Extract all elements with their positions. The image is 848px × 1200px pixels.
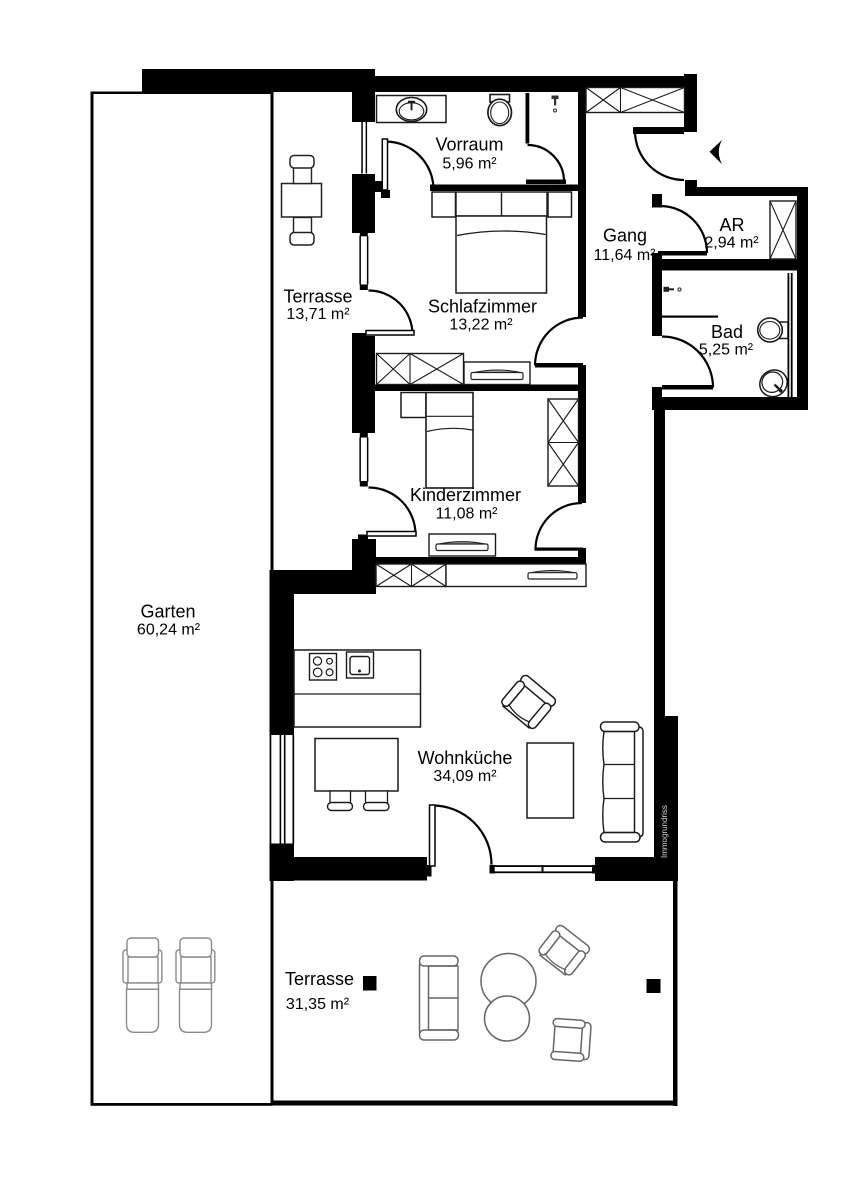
svg-text:31,35 m²: 31,35 m²	[286, 996, 350, 1013]
svg-text:Kinderzimmer: Kinderzimmer	[410, 485, 521, 505]
svg-text:Garten: Garten	[140, 602, 195, 622]
svg-text:Terrasse: Terrasse	[283, 287, 352, 307]
svg-text:11,08 m²: 11,08 m²	[436, 506, 499, 523]
svg-text:AR: AR	[719, 215, 744, 235]
svg-text:Wohnküche: Wohnküche	[418, 748, 513, 768]
svg-text:34,09 m²: 34,09 m²	[433, 768, 497, 785]
svg-text:Gang: Gang	[603, 226, 647, 246]
svg-text:11,64 m²: 11,64 m²	[594, 247, 657, 264]
svg-text:13,71 m²: 13,71 m²	[286, 306, 350, 323]
svg-text:Vorraum: Vorraum	[435, 135, 503, 155]
svg-text:13,22 m²: 13,22 m²	[449, 317, 513, 334]
svg-text:Bad: Bad	[711, 322, 743, 342]
svg-text:5,25 m²: 5,25 m²	[699, 342, 754, 359]
svg-text:5,96 m²: 5,96 m²	[442, 156, 497, 173]
svg-text:Immogrundriss: Immogrundriss	[660, 805, 669, 858]
svg-text:Schlafzimmer: Schlafzimmer	[428, 297, 537, 317]
svg-text:60,24 m²: 60,24 m²	[137, 622, 201, 639]
svg-text:Terrasse: Terrasse	[285, 969, 354, 989]
svg-text:2,94 m²: 2,94 m²	[704, 235, 759, 252]
